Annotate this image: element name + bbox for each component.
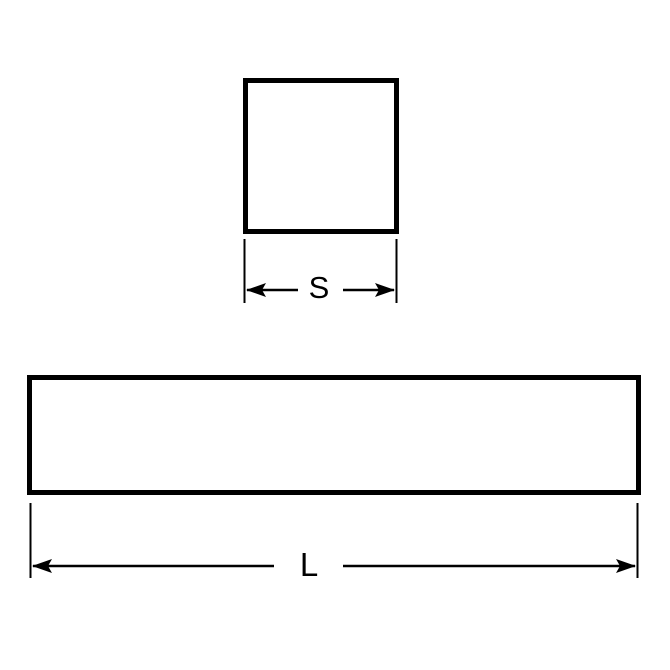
l-dimension-label: L	[300, 546, 318, 583]
side-view: L	[30, 378, 639, 584]
keystock-dimension-diagram: S L	[0, 0, 670, 670]
square-cross-section-outline	[246, 81, 397, 232]
s-dimension-label: S	[309, 270, 330, 305]
bar-side-outline	[30, 378, 639, 493]
diagram-canvas: S L	[0, 0, 670, 670]
cross-section-view: S	[245, 81, 397, 306]
